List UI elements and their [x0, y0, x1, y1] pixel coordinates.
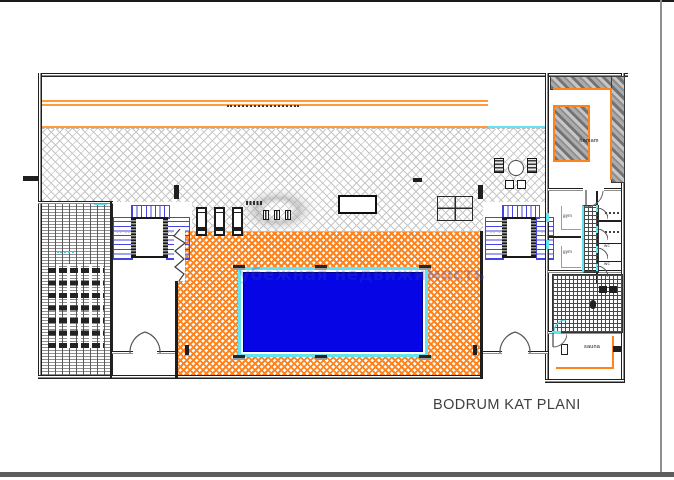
wall-cell — [598, 220, 621, 222]
room-label-sauna: sauna — [577, 345, 607, 351]
dash-mark — [413, 178, 422, 182]
seating-rows — [48, 264, 104, 348]
floor-plan-sheet: убежная недвижимость hamam gym gym wc wc… — [0, 0, 674, 480]
wall-seating-north — [38, 201, 113, 204]
stair-right-core-wall — [531, 219, 536, 256]
washroom-door — [554, 320, 566, 332]
bar-stool — [285, 210, 291, 220]
break-line — [172, 229, 188, 281]
stair-left-west-flight — [113, 217, 133, 260]
washroom-fixture — [599, 286, 607, 293]
watermark-text: убежная недвижимость — [239, 265, 485, 285]
sauna-fixture — [613, 346, 622, 352]
stair-right-core-wall — [502, 219, 507, 256]
wall-west — [38, 73, 42, 378]
door-jamb — [473, 345, 477, 355]
game-table — [437, 196, 473, 221]
pool-ladder — [233, 355, 245, 360]
cell-door — [597, 266, 608, 277]
stair-left-core-wall — [131, 219, 136, 256]
facade-cyan-segment — [488, 126, 545, 128]
plan-title: BODRUM KAT PLANI — [433, 397, 581, 413]
wall-south-main — [38, 375, 483, 379]
wall-hall-east — [545, 73, 549, 383]
frame-top-border — [0, 0, 674, 2]
door-jamb — [185, 345, 189, 355]
facade-line-lower — [42, 126, 488, 128]
wall-north — [38, 73, 628, 77]
pool-ladder — [315, 355, 327, 360]
ottoman — [505, 180, 514, 189]
door-opening — [546, 213, 549, 222]
hamam-door — [585, 190, 605, 208]
frame-right-border — [660, 0, 662, 477]
bar-stool — [263, 210, 269, 220]
wall-deck-east — [480, 231, 483, 378]
hamam-platform — [553, 105, 590, 162]
exterior-tick — [23, 176, 38, 181]
wall-gym-divider — [548, 236, 581, 238]
washroom-toilet — [590, 300, 596, 309]
tiny-text-mark — [246, 201, 263, 205]
sauna-door — [552, 333, 567, 348]
pillar — [478, 185, 483, 199]
ottoman — [517, 180, 526, 189]
cell-door — [597, 229, 608, 240]
bar-stool — [274, 210, 280, 220]
room-label-gym-upper: gym — [563, 214, 581, 219]
armchair — [494, 158, 504, 173]
round-table — [508, 160, 524, 176]
wall-wing-south — [545, 379, 624, 383]
sun-lounger — [232, 207, 243, 229]
room-label-hamam: hamam — [571, 139, 607, 145]
stair-left-core-wall — [163, 219, 168, 256]
room-label-gym-lower: gym — [563, 250, 581, 255]
billiard-table — [338, 195, 377, 214]
double-door-right — [499, 331, 531, 353]
cell-door — [597, 208, 608, 219]
room-label-wc-upper: wc — [604, 244, 620, 249]
sun-lounger — [196, 207, 207, 229]
pillar — [174, 185, 179, 199]
wall-stub — [528, 351, 548, 354]
seating-dotted-mark — [57, 251, 74, 253]
hamam-wall-east — [611, 76, 625, 183]
sun-lounger — [214, 207, 225, 229]
facade-line-upper-1 — [42, 100, 488, 102]
tick-row — [227, 105, 299, 107]
armchair — [527, 158, 537, 173]
double-door-left — [129, 331, 161, 353]
pool-ladder — [419, 355, 431, 360]
door-opening — [546, 240, 549, 249]
washroom-fixture — [609, 286, 617, 293]
frame-bottom-bar — [0, 472, 674, 477]
room-label-wc-lower: wc — [604, 262, 620, 267]
cell-door — [597, 248, 608, 259]
